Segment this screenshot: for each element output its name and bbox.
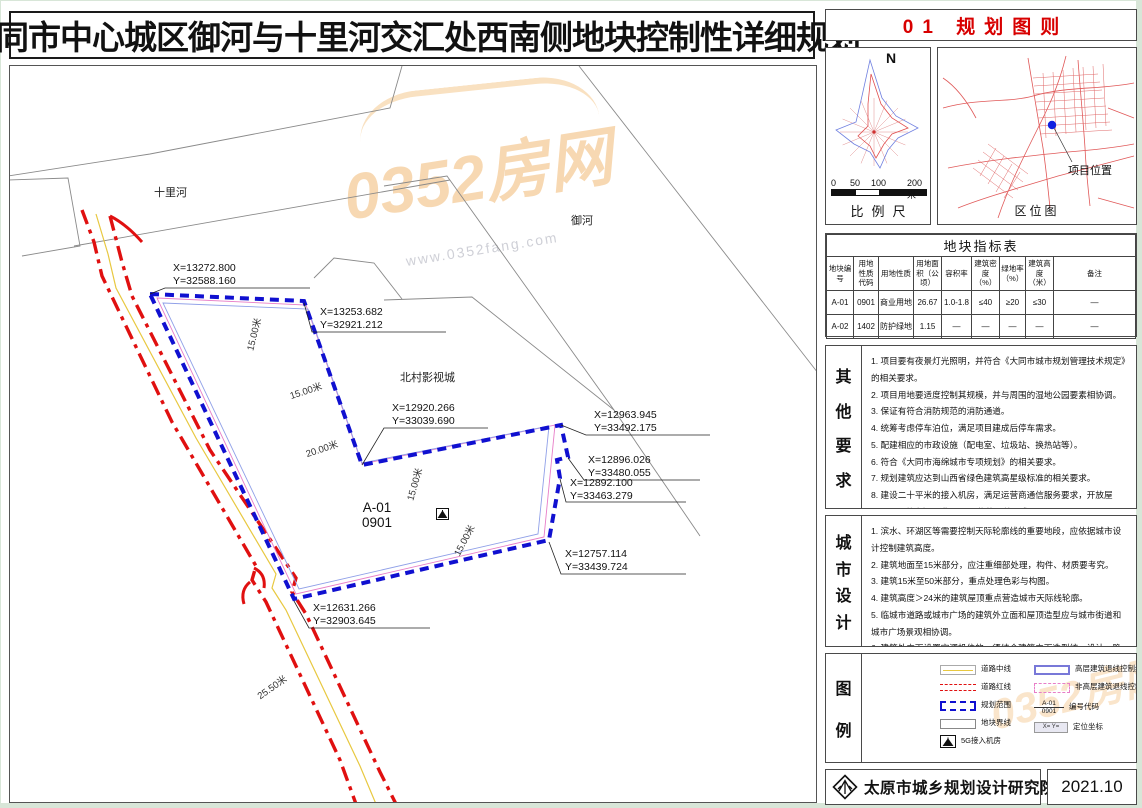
wind-rose-icon	[826, 54, 930, 174]
sheet-title-box: 01 规划图则	[825, 9, 1137, 41]
plot-code-label: A-01 0901	[362, 500, 392, 530]
plot-use-code: 0901	[362, 515, 392, 530]
coord-label: X=12757.114Y=33439.724	[565, 548, 628, 573]
legend-item: 道路中线	[940, 664, 1011, 675]
plan-date: 2021.10	[1061, 777, 1122, 797]
legend-item: 地块界线	[940, 718, 1011, 729]
road-redline	[82, 210, 396, 803]
location-map-network	[938, 48, 1136, 224]
road-centerline-swatch	[940, 665, 976, 675]
legend-right-column: 高层建筑退线控制线 非高层建筑退线控制线 A-010901 编号代码 X= Y=	[1034, 664, 1136, 740]
legend-body: 0352房网 道路中线 道路红线 规划范围 地块界线	[862, 654, 1136, 762]
scale-ticks: 0 50 100 200米	[831, 178, 927, 189]
urban-design-section: 城市 设计 1. 滨水、环湖区等需要控制天际轮廓线的重要地段，应依据城市设计控制…	[825, 515, 1137, 647]
requirement-item: 5. 配建相应的市政设施（配电室、垃圾站、换热站等）。	[871, 437, 1127, 454]
location-map-caption: 区位图	[938, 202, 1136, 219]
design-item: 1. 滨水、环湖区等需要控制天际轮廓线的重要地段，应依据城市设计控制建筑高度。	[871, 523, 1127, 557]
table-title: 地块指标表	[827, 235, 1136, 257]
table-header-row: 地块编号用地性质代码用地性质 用地面积（公顷）容积率建筑密度（%） 绿地率（%）…	[827, 257, 1136, 291]
river-label-yuhe: 御河	[571, 212, 593, 228]
requirement-item: 1. 项目要有夜景灯光照明，并符合《大同市城市规划管理技术规定》的相关要求。	[871, 353, 1127, 387]
design-item: 6. 建筑外立面设置空调机位的，须结合建筑立面造型统一设计，隐蔽处理。	[871, 640, 1127, 646]
coord-label: X=12892.100Y=33463.279	[570, 477, 633, 502]
project-location-label: 项目位置	[1068, 162, 1112, 178]
other-requirements-title: 其他 要求	[826, 346, 862, 508]
code-sample-swatch: A-010901	[1034, 700, 1064, 715]
scale-label: 比例尺	[826, 201, 930, 220]
design-item: 4. 建筑高度＞24米的建筑屋顶重点营造城市天际线轮廓。	[871, 590, 1127, 607]
requirement-item: 7. 规划建筑应达到山西省绿色建筑高星级标准的相关要求。	[871, 470, 1127, 487]
design-item: 3. 建筑15米至50米部分，重点处理色彩与构图。	[871, 573, 1127, 590]
legend-item: 5G接入机房	[940, 736, 1011, 747]
design-item: 5. 临城市道路或城市广场的建筑外立面和屋顶造型应与城市街道和城市广场景观相协调…	[871, 607, 1127, 641]
legend-item: 规划范围	[940, 700, 1011, 711]
indicator-table-box: 地块指标表 地块编号用地性质代码用地性质 用地面积（公顷）容积率建筑密度（%） …	[825, 233, 1137, 337]
legend-left-column: 道路中线 道路红线 规划范围 地块界线	[940, 664, 1011, 754]
other-requirements-section: 其他 要求 1. 项目要有夜景灯光照明，并符合《大同市城市规划管理技术规定》的相…	[825, 345, 1137, 509]
nonhighrise-setback-swatch	[1034, 683, 1070, 693]
table-row: A-010901商业用地 26.671.0-1.8≤40 ≥20≤30—	[827, 291, 1136, 315]
legend-item: A-010901 编号代码	[1034, 700, 1136, 715]
main-title-box: 大同市中心城区御河与十里河交汇处西南侧地块控制性详细规划	[9, 11, 815, 59]
requirement-item: 6. 符合《大同市海绵城市专项规划》的相关要求。	[871, 454, 1127, 471]
river-label-shilihe: 十里河	[154, 184, 187, 200]
legend-item: 高层建筑退线控制线	[1034, 664, 1136, 675]
requirement-item: 3. 保证有符合消防规范的消防通道。	[871, 403, 1127, 420]
institute-logo-icon	[832, 774, 858, 800]
parcel-lines	[10, 66, 817, 536]
site-label: 北村影视城	[400, 369, 455, 385]
5g-room-legend-icon	[940, 735, 956, 748]
indicator-table: 地块指标表 地块编号用地性质代码用地性质 用地面积（公顷）容积率建筑密度（%） …	[826, 234, 1136, 339]
legend-item: X= Y= 定位坐标	[1034, 722, 1136, 733]
plan-sheet: 大同市中心城区御河与十里河交汇处西南侧地块控制性详细规划 0352房网 www.…	[1, 1, 1136, 803]
table-row: A-021402防护绿地 1.15—— ———	[827, 315, 1136, 339]
project-location-marker	[1048, 121, 1056, 129]
coord-label: X=13272.800Y=32588.160	[173, 262, 236, 287]
design-item: 2. 建筑地面至15米部分，应注重细部处理，构件、材质要考究。	[871, 557, 1127, 574]
urban-design-title: 城市 设计	[826, 516, 862, 646]
date-box: 2021.10	[1047, 769, 1137, 805]
page-title: 大同市中心城区御河与十里河交汇处西南侧地块控制性详细规划	[0, 11, 860, 59]
institute-box: 太原市城乡规划设计研究院	[825, 769, 1041, 805]
legend-section: 图例 0352房网 道路中线 道路红线 规划范围 地块界线	[825, 653, 1137, 763]
planning-boundary	[150, 294, 568, 599]
road-redline-swatch	[940, 683, 976, 693]
requirement-item: 4. 统筹考虑停车泊位，满足项目建成后停车需求。	[871, 420, 1127, 437]
road-centerline	[96, 214, 376, 803]
requirement-item: 8. 建设二十平米的接入机房，满足运营商通信服务要求，开放屋顶，及公共空间，满足…	[871, 487, 1127, 508]
other-requirements-list: 1. 项目要有夜景灯光照明，并符合《大同市城市规划管理技术规定》的相关要求。 2…	[862, 346, 1136, 508]
coord-sample-swatch: X= Y=	[1034, 722, 1068, 733]
legend-title: 图例	[826, 654, 862, 762]
compass-box: N 0 50 100 200米 比例尺	[825, 47, 931, 225]
plot-code-number: A-01	[362, 500, 392, 515]
map-linework	[10, 66, 817, 803]
legend-item: 道路红线	[940, 682, 1011, 693]
coord-label: X=12896.026Y=33480.055	[588, 454, 651, 479]
planning-scope-swatch	[940, 701, 976, 711]
coord-label: X=12631.266Y=32903.645	[313, 602, 376, 627]
institute-name: 太原市城乡规划设计研究院	[864, 776, 1056, 798]
coord-label: X=13253.682Y=32921.212	[320, 306, 383, 331]
requirement-item: 2. 项目用地要适度控制其规模，并与周围的湿地公园要素相协调。	[871, 387, 1127, 404]
urban-design-list: 1. 滨水、环湖区等需要控制天际轮廓线的重要地段，应依据城市设计控制建筑高度。 …	[862, 516, 1136, 646]
location-map-box: 项目位置 区位图	[937, 47, 1137, 225]
legend-item: 非高层建筑退线控制线	[1034, 682, 1136, 693]
5g-room-icon	[436, 508, 449, 520]
sheet-title: 01 规划图则	[894, 12, 1068, 39]
map-canvas: 0352房网 www.0352fang.com	[9, 65, 817, 803]
scale-bar: 0 50 100 200米	[831, 178, 927, 196]
coord-label: X=12920.266Y=33039.690	[392, 402, 455, 427]
coord-label: X=12963.945Y=33492.175	[594, 409, 657, 434]
highrise-setback-swatch	[1034, 665, 1070, 675]
plot-boundary-swatch	[940, 719, 976, 729]
